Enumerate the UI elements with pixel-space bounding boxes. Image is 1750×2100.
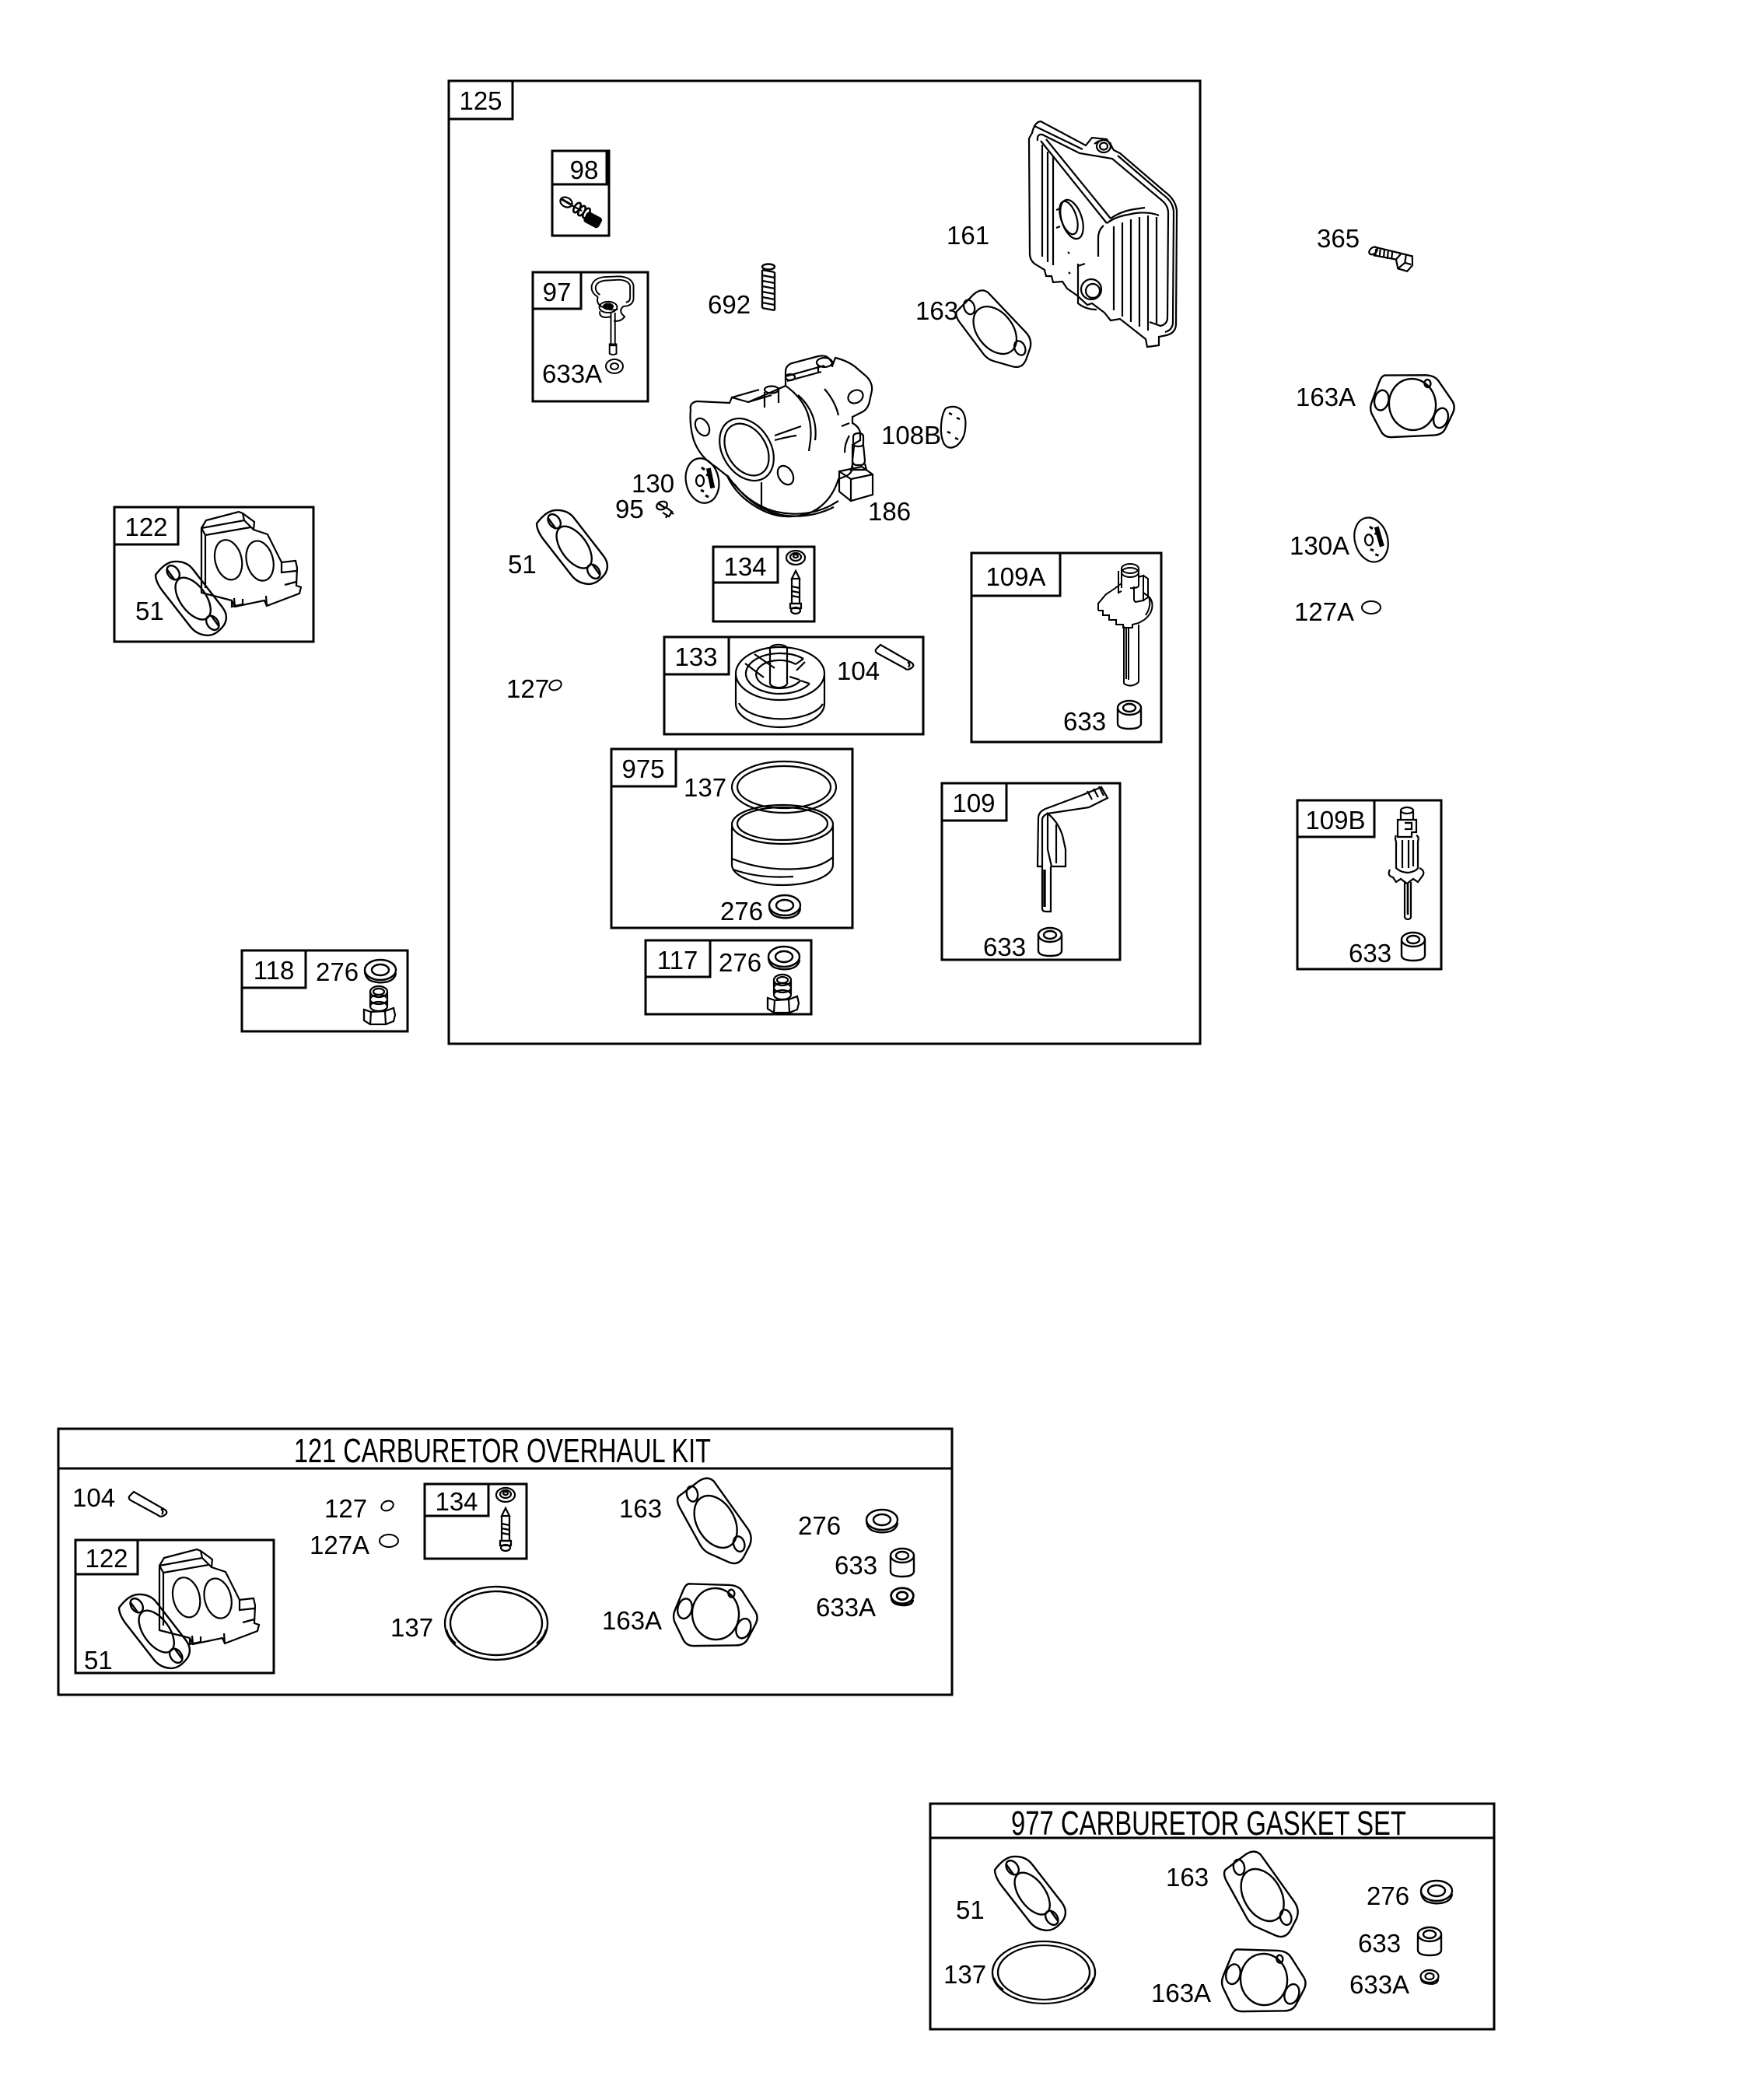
- svg-text:137: 137: [390, 1613, 433, 1642]
- svg-text:276: 276: [719, 948, 761, 977]
- svg-text:109: 109: [952, 789, 995, 817]
- svg-text:51: 51: [84, 1646, 113, 1675]
- svg-text:633A: 633A: [542, 359, 602, 388]
- svg-text:137: 137: [943, 1960, 986, 1989]
- svg-text:134: 134: [723, 552, 766, 581]
- svg-text:127A: 127A: [310, 1531, 369, 1559]
- svg-text:104: 104: [837, 656, 880, 685]
- svg-text:118: 118: [254, 956, 295, 985]
- svg-text:276: 276: [720, 897, 763, 926]
- svg-text:134: 134: [435, 1487, 478, 1516]
- svg-text:163A: 163A: [1296, 383, 1356, 411]
- svg-text:125: 125: [459, 86, 502, 115]
- svg-text:127: 127: [324, 1494, 367, 1523]
- svg-text:186: 186: [868, 497, 911, 526]
- svg-text:97: 97: [543, 278, 572, 306]
- svg-text:163: 163: [619, 1494, 662, 1523]
- svg-text:692: 692: [708, 290, 751, 319]
- svg-text:163A: 163A: [1151, 1979, 1211, 2007]
- svg-text:108B: 108B: [881, 421, 941, 450]
- svg-text:276: 276: [1367, 1881, 1409, 1910]
- svg-text:95: 95: [615, 495, 644, 523]
- svg-text:109B: 109B: [1305, 806, 1365, 835]
- svg-text:365: 365: [1317, 224, 1360, 253]
- svg-text:51: 51: [508, 550, 537, 579]
- svg-text:633: 633: [1349, 939, 1391, 968]
- svg-text:633: 633: [1063, 707, 1106, 736]
- svg-text:633: 633: [1358, 1929, 1401, 1958]
- svg-text:975: 975: [621, 754, 664, 783]
- svg-text:104: 104: [72, 1483, 115, 1512]
- svg-text:98: 98: [570, 156, 599, 184]
- svg-text:133: 133: [674, 642, 717, 671]
- svg-text:633: 633: [835, 1551, 877, 1580]
- svg-text:276: 276: [798, 1511, 841, 1540]
- svg-text:633: 633: [983, 933, 1026, 961]
- svg-text:276: 276: [316, 957, 359, 986]
- svg-text:163: 163: [915, 296, 958, 325]
- svg-text:127A: 127A: [1294, 597, 1354, 626]
- svg-text:130A: 130A: [1290, 531, 1349, 560]
- svg-text:977 CARBURETOR GASKET SET: 977 CARBURETOR GASKET SET: [1011, 1804, 1406, 1843]
- svg-text:163: 163: [1166, 1863, 1209, 1892]
- svg-text:109A: 109A: [985, 562, 1045, 591]
- svg-text:161: 161: [947, 221, 989, 250]
- svg-text:127: 127: [506, 674, 549, 703]
- svg-text:163A: 163A: [602, 1606, 662, 1635]
- svg-text:122: 122: [85, 1544, 128, 1573]
- svg-text:121 CARBURETOR OVERHAUL KIT: 121 CARBURETOR OVERHAUL KIT: [294, 1432, 711, 1470]
- svg-text:117: 117: [657, 946, 698, 975]
- svg-text:122: 122: [124, 513, 167, 541]
- svg-text:130: 130: [632, 469, 674, 498]
- svg-text:137: 137: [684, 773, 726, 802]
- svg-text:51: 51: [956, 1895, 985, 1924]
- svg-text:633A: 633A: [1349, 1970, 1409, 1999]
- svg-text:633A: 633A: [816, 1593, 876, 1622]
- svg-text:51: 51: [135, 597, 164, 625]
